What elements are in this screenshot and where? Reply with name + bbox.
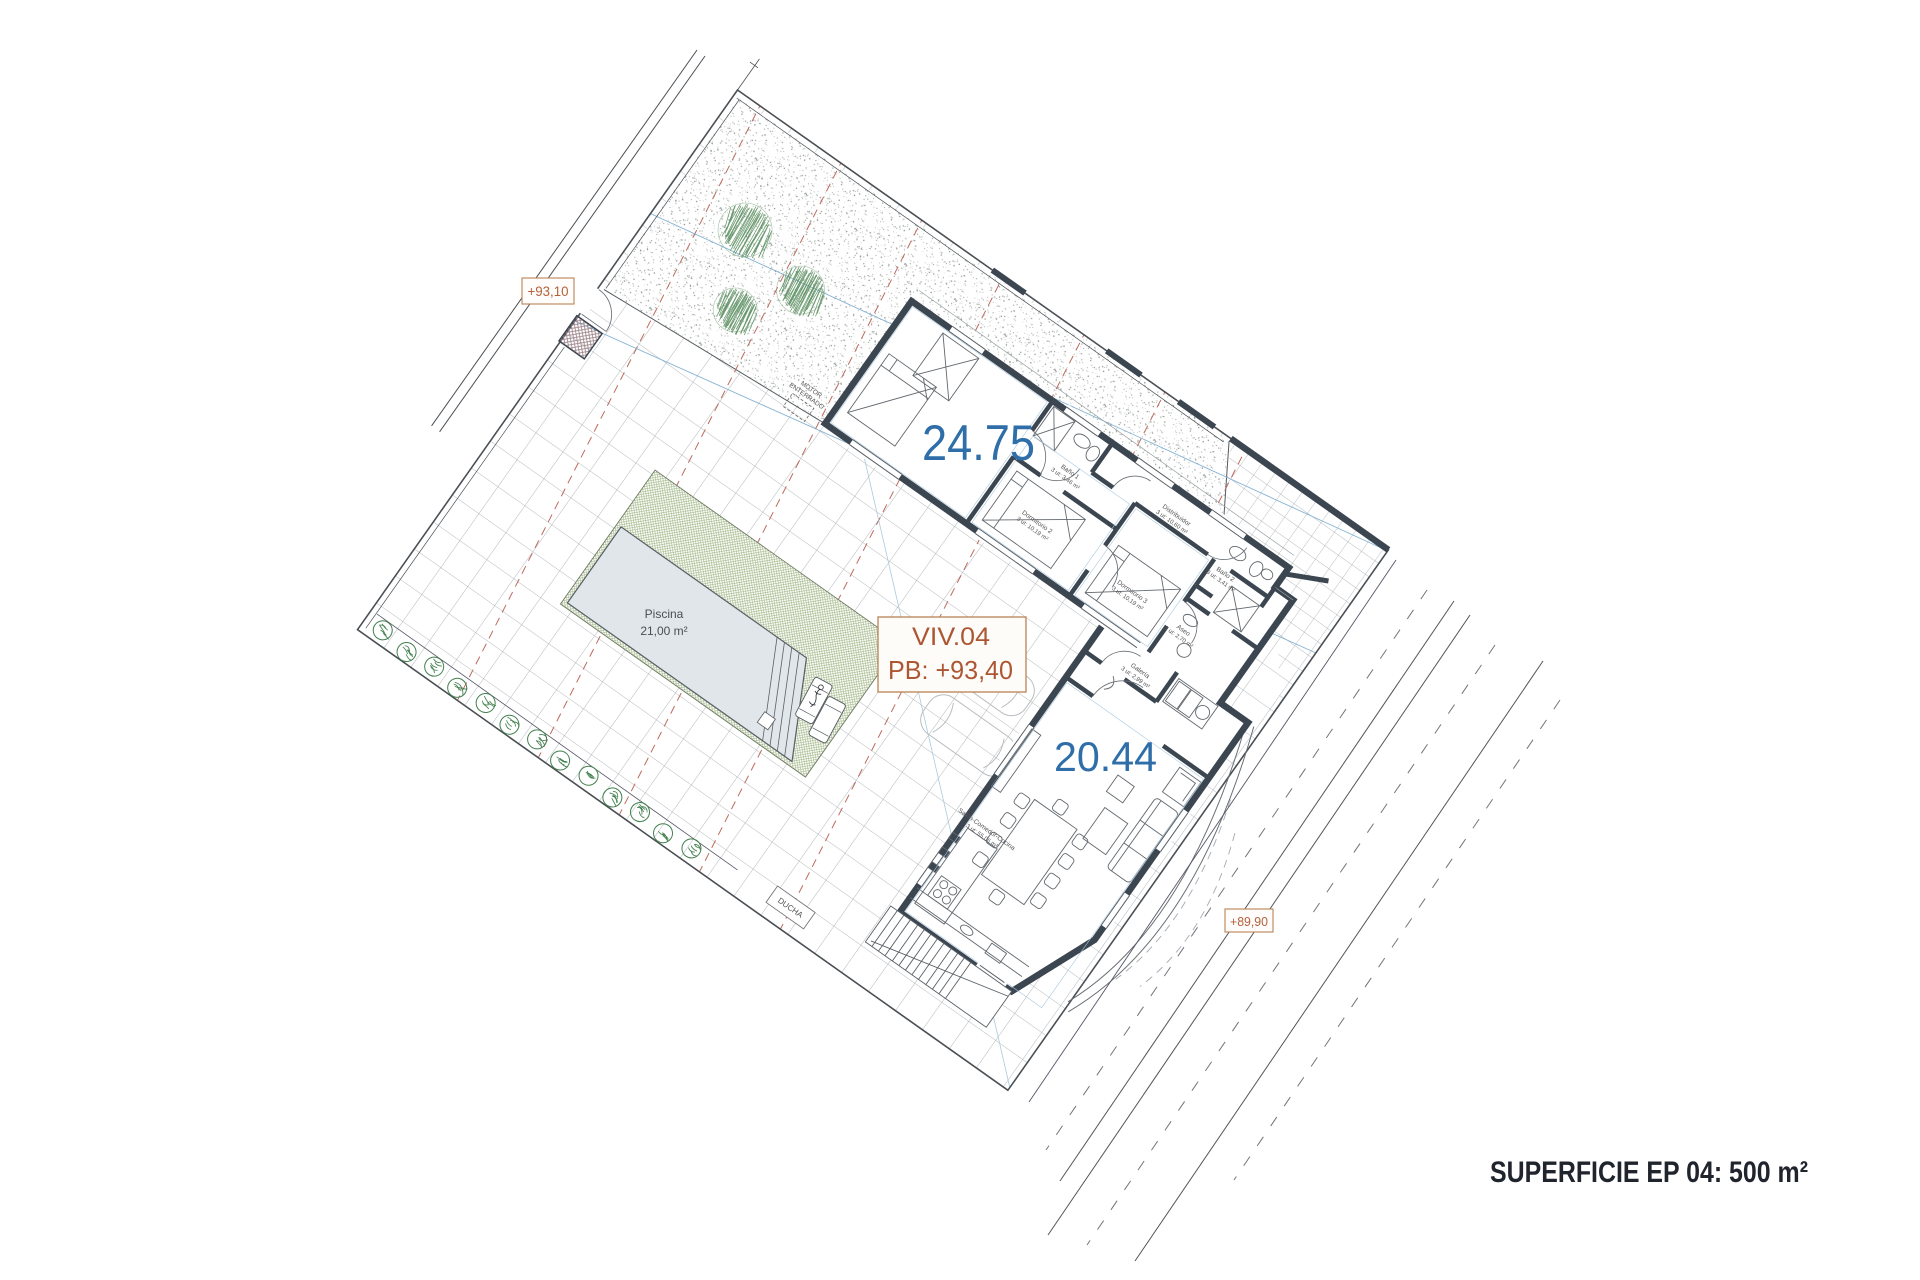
svg-text:21,00 m²: 21,00 m² — [640, 624, 687, 638]
svg-text:20.44: 20.44 — [1054, 733, 1157, 780]
svg-text:+89,90: +89,90 — [1230, 914, 1268, 929]
svg-text:24.75: 24.75 — [922, 415, 1035, 471]
svg-text:SUPERFICIE EP 04: 500 m²: SUPERFICIE EP 04: 500 m² — [1490, 1156, 1808, 1189]
svg-text:PB: +93,40: PB: +93,40 — [888, 655, 1013, 685]
svg-text:+93,10: +93,10 — [528, 283, 569, 299]
svg-text:Piscina: Piscina — [645, 607, 684, 621]
svg-text:VIV.04: VIV.04 — [912, 623, 990, 651]
